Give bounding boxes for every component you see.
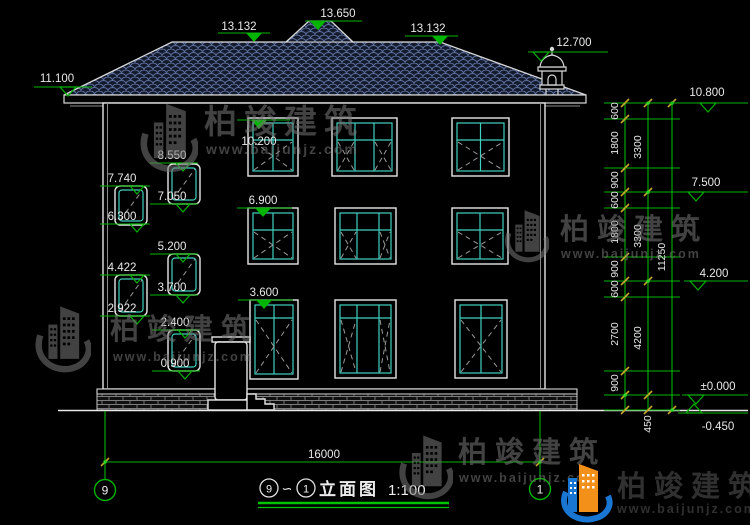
marker-13132-left: 13.132: [218, 21, 270, 42]
watermark-logo-icon: [39, 306, 89, 369]
watermark-left-bottom: 柏竣建筑 www.baijunjz.com: [39, 306, 258, 369]
elevation-label: -0.450: [702, 421, 735, 433]
elevation-label: 11.100: [40, 73, 74, 85]
elevation-label: 12.700: [556, 37, 591, 49]
watermark-brand: 柏竣建筑: [560, 212, 708, 246]
marker-7500: 7.500: [680, 177, 748, 201]
elevation-label: 7.500: [692, 177, 721, 189]
cupola: [538, 47, 566, 95]
dim-text: 4200: [632, 326, 644, 350]
title-tilde: ∽: [282, 481, 293, 496]
marker-zero: ±0.000: [682, 381, 748, 404]
elevation-label: 3.700: [158, 282, 187, 294]
dim-text: 900: [609, 374, 621, 392]
elevation-label: 4.200: [700, 268, 729, 280]
roof-outline: [64, 21, 586, 95]
marker-4200: 4.200: [684, 268, 748, 290]
marker-12700: 12.700: [528, 37, 608, 61]
brand-logo-colored: 柏竣建筑 www.baijunjz.com: [564, 464, 750, 519]
marker-minus-450: -0.450: [678, 404, 748, 433]
watermark-brand: 柏竣建筑: [458, 435, 606, 469]
dim-text: 1800: [609, 131, 621, 155]
elevation-label: 13.132: [221, 21, 256, 33]
dim-text: 900: [609, 260, 621, 278]
drawing-canvas: 11.100 13.132 13.650 13.132 12.700 10.20…: [0, 0, 750, 525]
watermark-url: www.baijunjz.com: [205, 141, 359, 157]
watermark-brand: 柏竣建筑: [204, 103, 364, 140]
elevation-label: 4.422: [108, 262, 137, 274]
watermark-brand: 柏竣建筑: [110, 312, 258, 346]
dim-text-total-width: 16000: [308, 449, 340, 461]
watermark-url: www.baijunjz.com: [112, 350, 253, 364]
dim-text: 600: [609, 102, 621, 120]
watermark-logo-icon: [402, 436, 450, 497]
elevation-label: 7.050: [158, 191, 187, 203]
base-fascia: [97, 389, 577, 394]
dim-text: 450: [642, 415, 654, 433]
dim-text: 2700: [609, 322, 621, 346]
watermark-url: www.baijunjz.com: [458, 471, 599, 485]
roof: [64, 21, 586, 95]
elevation-label: 13.132: [410, 23, 445, 35]
plinth-brick-band: [97, 394, 577, 410]
dim-text: 600: [609, 191, 621, 209]
elevation-label: 7.740: [108, 173, 137, 185]
elevation-label: 6.300: [108, 211, 137, 223]
elevation-label: 13.650: [320, 8, 355, 20]
elevation-label: 6.900: [249, 195, 278, 207]
title-axis-to: 1: [303, 484, 309, 496]
elevation-label: ±0.000: [700, 381, 735, 393]
elevation-label: 3.600: [250, 287, 279, 299]
title-name: 立面图: [319, 479, 379, 499]
brand-text: 柏竣建筑: [617, 469, 750, 503]
watermark-url: www.baijunjz.com: [560, 247, 701, 261]
dim-text: 3300: [632, 135, 644, 159]
elevation-label: 5.200: [158, 241, 187, 253]
elevation-label: 10.800: [689, 87, 724, 99]
dim-text: 900: [609, 171, 621, 189]
right-dimension-block: 600 1800 900 600 1800 900 600 2700 900 4…: [604, 99, 680, 433]
axis-bubble-left-label: 9: [102, 484, 109, 498]
dim-text: 600: [609, 280, 621, 298]
title-axis-from: 9: [266, 484, 272, 496]
brand-url: www.baijunjz.com: [616, 502, 750, 516]
cad-elevation-drawing: 11.100 13.132 13.650 13.132 12.700 10.20…: [0, 0, 750, 525]
